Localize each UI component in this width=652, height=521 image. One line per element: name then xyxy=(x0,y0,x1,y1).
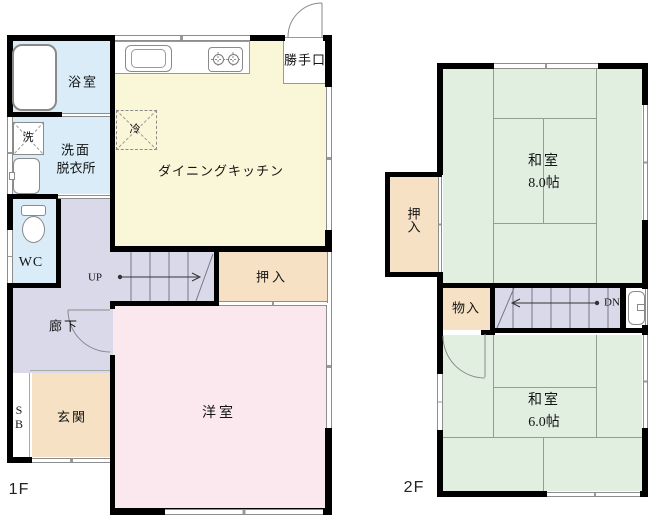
wall xyxy=(110,301,219,306)
label-laundry: 洗 xyxy=(23,133,34,144)
label-tatami8-2: 8.0帖 xyxy=(528,177,560,191)
window-2f-top xyxy=(492,63,600,69)
tatami-line xyxy=(493,223,596,224)
tatami-line xyxy=(543,118,544,223)
window-2f-right-upper xyxy=(643,103,648,222)
label-floor-2f: 2F xyxy=(404,479,425,497)
fusuma-closet-2f xyxy=(438,175,442,274)
toilet-tank xyxy=(21,205,46,216)
label-hallway: 廊下 xyxy=(49,320,79,333)
floor-plan-canvas: 浴室 洗面 脱衣所 洗 WC 廊下 UP 押入 玄関 SB 洋室 ダイニングキッ… xyxy=(0,0,652,521)
toilet-bowl xyxy=(22,216,45,243)
wall xyxy=(214,252,219,303)
window-behind-fixture xyxy=(645,287,648,327)
wall xyxy=(56,199,61,287)
wall xyxy=(440,283,648,288)
label-western-room: 洋室 xyxy=(202,407,236,421)
stove-burner-left xyxy=(213,54,224,65)
label-stairs-up: UP xyxy=(88,273,102,284)
entrance-sliding-door xyxy=(30,458,113,463)
wall xyxy=(642,325,648,335)
wall-thin-right-closet xyxy=(327,252,332,303)
wall xyxy=(325,230,332,252)
tatami-line xyxy=(596,66,597,283)
wall xyxy=(7,283,61,288)
wall xyxy=(620,283,626,333)
wall xyxy=(110,246,330,252)
tatami-line xyxy=(493,66,494,283)
label-fridge: 冷 xyxy=(130,125,141,136)
wall xyxy=(110,355,115,513)
label-floor-1f: 1F xyxy=(9,481,30,499)
upstairs-fixture-handle xyxy=(637,304,645,311)
wall xyxy=(7,194,58,199)
window-western-bottom xyxy=(165,509,323,515)
wall xyxy=(385,272,442,277)
tatami-line xyxy=(493,118,596,119)
wall xyxy=(7,35,111,41)
wall xyxy=(437,430,443,497)
bathtub xyxy=(12,44,57,111)
label-washroom-2: 脱衣所 xyxy=(56,162,95,175)
label-tatami8-1: 和室 xyxy=(528,155,560,169)
wall xyxy=(7,457,32,463)
wall xyxy=(110,35,115,252)
stove-burner-right xyxy=(228,54,239,65)
wall xyxy=(437,63,494,69)
label-tatami6-2: 6.0帖 xyxy=(528,416,560,430)
wall xyxy=(385,172,390,277)
label-bath: 浴室 xyxy=(68,76,98,89)
tatami-line xyxy=(596,335,597,438)
sliding-door-washroom xyxy=(58,195,112,199)
shoe-box-edge xyxy=(29,373,30,459)
label-entrance: 玄関 xyxy=(57,411,87,424)
room-stairs-1f xyxy=(113,252,214,301)
wall xyxy=(640,491,648,497)
label-dining-kitchen: ダイニングキッチン xyxy=(158,165,284,178)
tatami-line xyxy=(493,387,596,388)
back-door-swing xyxy=(288,3,322,37)
fusuma-closet-1f xyxy=(219,301,327,306)
wall xyxy=(7,112,62,117)
label-storage: 物入 xyxy=(452,302,480,315)
wall xyxy=(598,63,648,69)
window-2f-bottom xyxy=(543,492,647,497)
wash-basin xyxy=(13,158,40,194)
label-wc: WC xyxy=(19,256,44,270)
wall xyxy=(7,283,13,463)
label-stairs-down: DN xyxy=(604,298,620,309)
window-right-western xyxy=(326,303,332,430)
window-kitchen-top xyxy=(111,35,252,41)
label-washroom-1: 洗面 xyxy=(61,144,91,157)
window-2f-left xyxy=(437,372,443,432)
wall xyxy=(642,428,648,497)
wall xyxy=(490,283,495,334)
wall xyxy=(642,220,648,289)
wall xyxy=(481,330,495,335)
sliding-door-bath xyxy=(62,113,112,117)
wall xyxy=(250,35,285,41)
tatami-line xyxy=(543,437,544,491)
label-closet-2f: 押入 xyxy=(407,207,420,233)
label-closet-1f: 押入 xyxy=(256,271,288,284)
wall xyxy=(7,194,13,230)
entrance-step-line xyxy=(30,370,112,371)
kitchen-sink-inner xyxy=(131,49,166,68)
window-left-wc xyxy=(7,228,13,285)
wash-basin-faucet xyxy=(9,172,15,180)
wall xyxy=(325,428,332,515)
wall xyxy=(642,63,648,105)
label-shoe-box: SB xyxy=(13,403,25,431)
label-tatami6-1: 和室 xyxy=(528,394,560,408)
label-back-door: 勝手口 xyxy=(284,54,326,67)
wall xyxy=(325,35,332,87)
wall xyxy=(437,491,547,497)
wall xyxy=(437,63,443,175)
room-stairs-2f xyxy=(495,288,620,328)
window-right-kitchen xyxy=(326,85,332,232)
window-2f-right-lower xyxy=(643,333,648,430)
wall xyxy=(385,172,442,177)
